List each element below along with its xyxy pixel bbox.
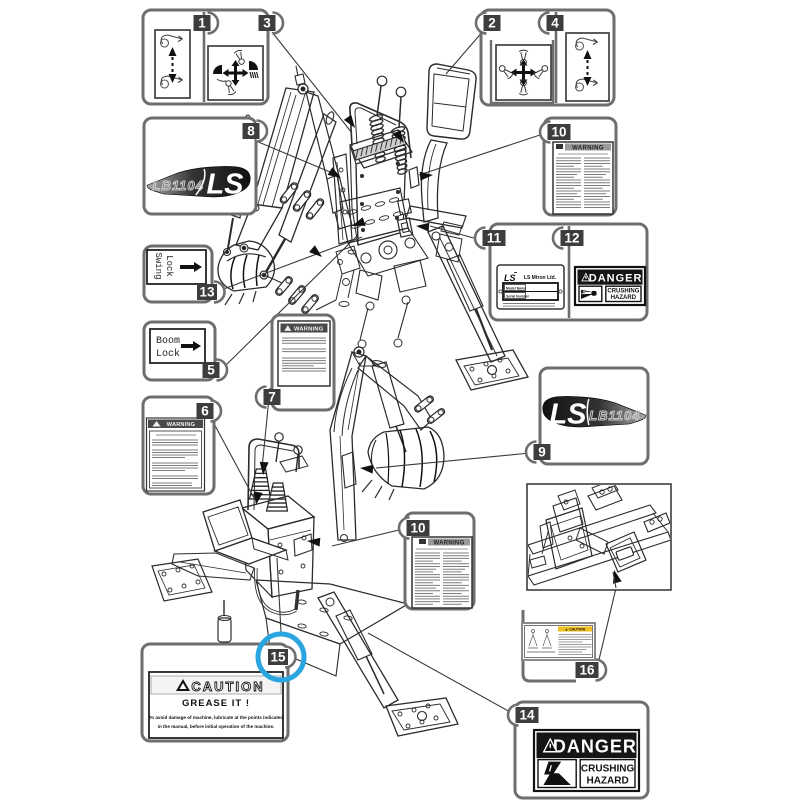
svg-text:Serial Number: Serial Number xyxy=(506,294,530,298)
svg-text:Lock: Lock xyxy=(164,255,174,277)
svg-text:15: 15 xyxy=(270,650,286,665)
svg-text:14: 14 xyxy=(519,708,535,723)
svg-text:11: 11 xyxy=(487,231,502,246)
svg-text:LB1104: LB1104 xyxy=(589,408,640,423)
svg-text:DANGER: DANGER xyxy=(589,272,643,284)
svg-text:WARNING: WARNING xyxy=(433,541,464,547)
svg-text:HAZARD: HAZARD xyxy=(611,295,637,301)
svg-text:▲ CAUTION: ▲ CAUTION xyxy=(565,628,586,632)
svg-text:Boom: Boom xyxy=(156,336,180,347)
svg-text:1: 1 xyxy=(198,16,206,31)
svg-text:LS: LS xyxy=(504,273,516,283)
svg-text:WARNING: WARNING xyxy=(572,146,604,152)
svg-text:8: 8 xyxy=(247,124,255,139)
svg-text:WARNING: WARNING xyxy=(294,327,324,333)
svg-text:HAZARD: HAZARD xyxy=(586,775,628,786)
svg-text:12: 12 xyxy=(564,231,579,246)
svg-text:3: 3 xyxy=(263,16,271,31)
svg-text:13: 13 xyxy=(199,285,215,300)
svg-text:DANGER: DANGER xyxy=(553,736,637,756)
svg-text:LS Mtron Ltd.: LS Mtron Ltd. xyxy=(524,275,557,281)
svg-text:4: 4 xyxy=(551,16,559,31)
svg-text:10: 10 xyxy=(410,521,425,536)
svg-text:5: 5 xyxy=(207,363,215,378)
svg-text:LB1104: LB1104 xyxy=(153,178,204,193)
svg-text:Swing: Swing xyxy=(153,252,163,279)
svg-text:Model Name: Model Name xyxy=(506,286,526,290)
svg-text:LS: LS xyxy=(206,168,244,200)
svg-text:6: 6 xyxy=(201,404,209,419)
svg-text:CAUTION: CAUTION xyxy=(191,679,264,694)
svg-text:7: 7 xyxy=(268,390,276,405)
svg-text:GREASE IT !: GREASE IT ! xyxy=(182,698,250,709)
svg-text:Lock: Lock xyxy=(156,348,180,360)
svg-text:CRUSHING: CRUSHING xyxy=(607,289,639,295)
svg-text:16: 16 xyxy=(579,663,595,678)
svg-text:2: 2 xyxy=(488,16,496,31)
svg-text:WARNING: WARNING xyxy=(167,422,195,428)
svg-text:CRUSHING: CRUSHING xyxy=(581,763,635,774)
svg-text:9: 9 xyxy=(538,445,546,460)
svg-text:To avoid damage of machine, lu: To avoid damage of machine, lubricate at… xyxy=(149,715,284,720)
svg-text:10: 10 xyxy=(551,125,566,140)
svg-text:in the manual, before initial: in the manual, before initial operation … xyxy=(158,724,275,729)
svg-text:LS: LS xyxy=(549,398,587,430)
